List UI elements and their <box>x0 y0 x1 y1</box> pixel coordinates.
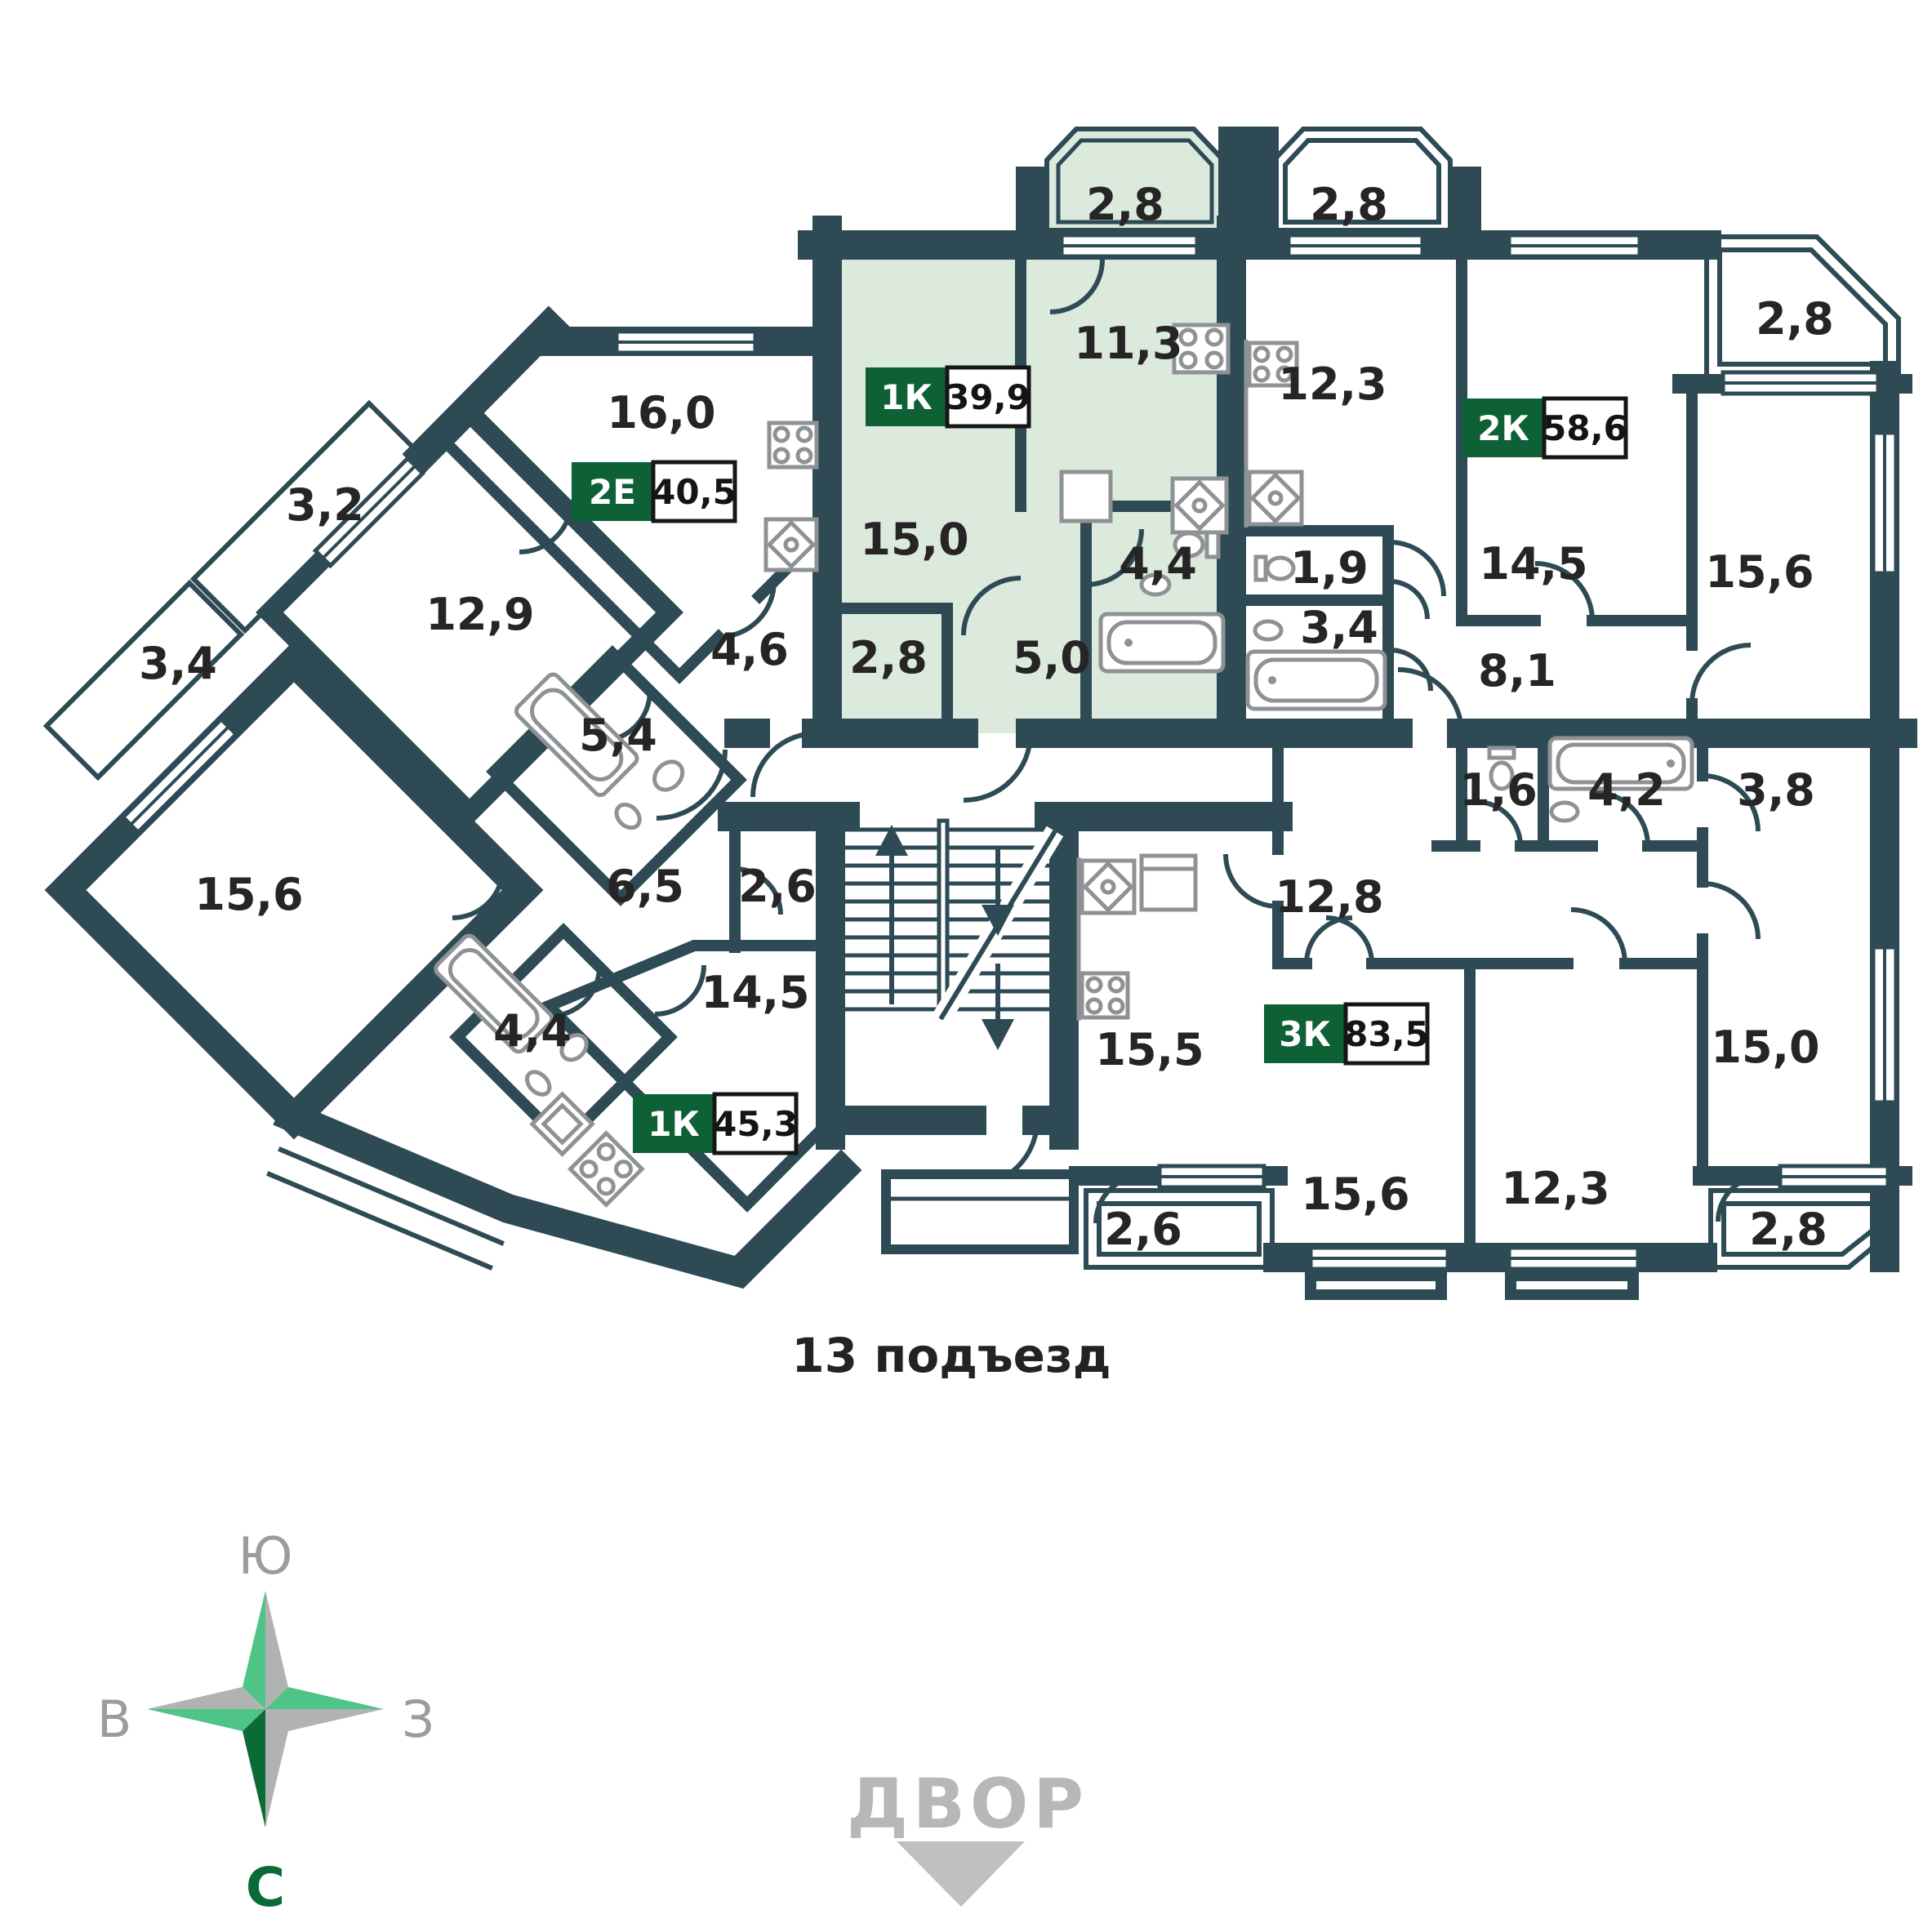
window <box>1873 433 1896 573</box>
room-area-label: 2,6 <box>738 861 817 912</box>
compass-west-label: З <box>402 1689 434 1749</box>
room-area-label: 4,4 <box>493 1005 572 1057</box>
window <box>1289 235 1422 256</box>
courtyard-arrow-icon <box>897 1841 1025 1907</box>
toilet-icon <box>1256 557 1293 580</box>
apartment-badge-1k-45-3[interactable]: 1К 45,3 <box>633 1094 798 1153</box>
room-area-label: 3,4 <box>139 638 217 689</box>
room-area-label: 11,3 <box>1074 318 1182 369</box>
entrance-porch <box>886 1174 1074 1249</box>
courtyard-label: ДВОР <box>847 1764 1088 1844</box>
window <box>1780 1166 1888 1187</box>
sink-icon <box>1082 861 1134 913</box>
apartment-badge-1k-39-9[interactable]: 1К 39,9 <box>866 367 1031 426</box>
compass-east-label: В <box>97 1689 132 1749</box>
entrance-label: 13 подъезд <box>791 1328 1111 1383</box>
sink-icon <box>1173 479 1226 532</box>
stairs-down-arrow <box>982 1019 1014 1050</box>
apartment-badge-3k-83-5[interactable]: 3К 83,5 <box>1264 1004 1429 1063</box>
apartment-type: 2Е <box>589 472 636 512</box>
apartment-area: 45,3 <box>713 1104 798 1144</box>
courtyard-marker: ДВОР <box>847 1764 1088 1907</box>
room-area-label: 5,4 <box>579 710 657 761</box>
room-area-label: 2,6 <box>1104 1204 1182 1255</box>
compass-rose: Ю В З С <box>97 1526 434 1919</box>
compass-south-label: Ю <box>238 1526 293 1586</box>
room-area-label: 2,8 <box>1310 179 1388 230</box>
window <box>617 332 755 353</box>
room-area-label: 5,0 <box>1013 632 1091 683</box>
apartment-area: 83,5 <box>1344 1014 1429 1054</box>
window <box>1873 947 1896 1102</box>
room-area-label: 15,6 <box>1301 1169 1409 1220</box>
stove-icon <box>529 1092 643 1205</box>
bathtub-icon <box>1248 652 1385 709</box>
apartment-area: 40,5 <box>652 472 737 512</box>
staircase <box>845 821 1074 1249</box>
apartment-area: 58,6 <box>1542 408 1627 448</box>
apartment-type: 2К <box>1477 408 1529 448</box>
window <box>1311 1248 1448 1269</box>
room-area-label: 14,5 <box>1479 538 1587 590</box>
room-area-label: 1,6 <box>1459 764 1538 816</box>
window <box>1062 235 1197 256</box>
room-area-label: 15,5 <box>1095 1024 1204 1075</box>
room-area-label: 2,8 <box>849 632 928 683</box>
apartment-type: 3К <box>1279 1014 1331 1054</box>
apartment-badge-2k-58-6[interactable]: 2К 58,6 <box>1462 398 1627 457</box>
room-area-label: 12,3 <box>1501 1163 1609 1214</box>
room-area-label: 2,8 <box>1086 179 1164 230</box>
room-area-label: 4,6 <box>710 624 789 675</box>
window <box>1160 1166 1264 1187</box>
stove-icon <box>769 423 817 467</box>
stove-icon <box>1082 973 1128 1017</box>
room-area-label: 12,3 <box>1278 358 1387 410</box>
room-area-label: 8,1 <box>1478 645 1556 697</box>
room-area-label: 15,0 <box>1711 1022 1819 1073</box>
room-area-label: 16,0 <box>607 387 715 438</box>
room-area-label: 3,4 <box>1300 602 1378 653</box>
room-area-label: 15,0 <box>860 514 968 565</box>
compass-north-label: С <box>246 1856 285 1919</box>
kitchen-table-icon <box>1062 472 1111 521</box>
sink-icon <box>1551 803 1578 821</box>
room-area-label: 15,6 <box>1705 546 1814 598</box>
room-area-label: 1,9 <box>1290 542 1369 594</box>
window <box>1723 372 1878 394</box>
sink-icon <box>1255 621 1281 639</box>
room-area-label: 12,9 <box>425 589 534 640</box>
bathtub-icon <box>1101 614 1223 671</box>
room-area-label: 4,4 <box>1119 538 1197 590</box>
room-area-label: 2,8 <box>1749 1204 1827 1255</box>
fridge-icon <box>1142 856 1195 910</box>
room-area-label: 6,5 <box>606 861 684 912</box>
room-area-label: 14,5 <box>701 967 809 1018</box>
window <box>1509 235 1640 256</box>
room-area-label: 4,2 <box>1587 764 1666 816</box>
room-area-label: 3,2 <box>286 479 364 531</box>
room-area-label: 15,6 <box>194 869 303 920</box>
apartment-badge-2e-40-5[interactable]: 2Е 40,5 <box>572 462 737 521</box>
window <box>1509 1248 1638 1269</box>
sink-icon <box>1249 472 1302 524</box>
apartment-area: 39,9 <box>946 377 1031 417</box>
room-area-label: 12,8 <box>1275 871 1383 923</box>
room-area-label: 2,8 <box>1756 293 1834 345</box>
room-area-label: 3,8 <box>1737 764 1815 816</box>
floor-plan: 2,8 2,8 2,8 16,0 11,3 15,0 2,8 5,0 4,4 4… <box>0 0 1932 1932</box>
apartment-type: 1К <box>648 1104 700 1144</box>
sink-icon <box>766 519 817 570</box>
apartment-type: 1К <box>880 377 933 417</box>
